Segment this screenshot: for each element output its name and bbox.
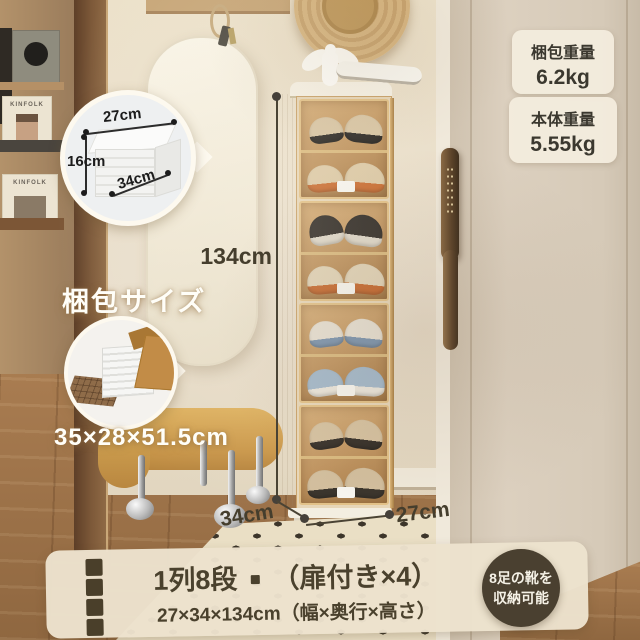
banner-title: 1列8段・（扉付き×4） [115, 553, 476, 598]
banner-title-right: （扉付き×4） [272, 561, 438, 594]
dimension-dot [272, 92, 281, 101]
magazine-photo [14, 196, 46, 218]
bench-foot [126, 498, 154, 520]
door-label-chip [337, 283, 355, 294]
package-inset [64, 316, 178, 430]
package-weight-badge: 梱包重量 6.2kg [512, 30, 614, 94]
cabinet-front [296, 96, 392, 510]
magazine-photo [16, 114, 38, 140]
dimension-dot [385, 510, 394, 519]
inset-dim-dot [81, 134, 87, 140]
magazine-title: KINFOLK [3, 180, 57, 186]
magazine-title: KINFOLK [3, 102, 51, 108]
banner-title-separator: ・ [250, 575, 259, 584]
banner-title-left: 1列8段 [153, 564, 238, 595]
capacity-line1: 8足の靴を [482, 568, 560, 588]
capacity-badge: 8足の靴を 収納可能 [482, 549, 560, 627]
cabinet-door-4 [299, 405, 389, 505]
shoebox-side [155, 139, 181, 197]
banner-decor-square [86, 599, 103, 616]
banner-subtitle: 27×34×134cm（幅×奥行×高さ） [116, 595, 476, 628]
product-weight-badge: 本体重量 5.55kg [509, 97, 617, 163]
cabinet-door-3 [299, 303, 389, 403]
package-weight-label: 梱包重量 [512, 39, 614, 63]
door-panel-groove [626, 0, 628, 640]
inset-dim-dot [171, 119, 177, 125]
door-keypad [446, 166, 454, 214]
banner-decor-square [86, 579, 103, 596]
door-label-chip [337, 181, 355, 192]
door-label-chip [337, 487, 355, 498]
wall-shelf [0, 218, 64, 230]
package-weight-value: 6.2kg [512, 66, 614, 90]
shoe-cabinet [278, 82, 394, 526]
inset-height-label: 16cm [67, 153, 105, 170]
angel-figurine-head [325, 44, 336, 55]
box-dimension-inset: 27cm 16cm 34cm [60, 90, 196, 226]
inset-dim-dot [81, 190, 87, 196]
height-dimension-label: 134cm [190, 243, 272, 270]
product-weight-value: 5.55kg [509, 133, 617, 157]
wall-shelf [0, 140, 64, 152]
wall-pan-decor [24, 42, 48, 66]
banner-decor-square [86, 619, 103, 636]
product-weight-label: 本体重量 [509, 106, 617, 130]
inset-width-label: 27cm [102, 105, 142, 126]
inset-dim-dot [109, 191, 115, 197]
inset-dim-dot [165, 170, 171, 176]
height-dimension-line [276, 96, 278, 500]
package-size-title: 梱包サイズ [62, 280, 206, 319]
wall-shelf [0, 82, 64, 90]
door-label-chip [337, 385, 355, 396]
door-handle-bar [443, 250, 458, 350]
cabinet-door-1 [299, 99, 389, 199]
cabinet-hinge-strip [390, 98, 394, 508]
cabinet-door-2 [299, 201, 389, 301]
dimension-dot [300, 514, 309, 523]
product-scene: KINFOLK KINFOLK [0, 0, 640, 640]
banner-decor-square [85, 559, 102, 576]
capacity-line2: 収納可能 [482, 588, 560, 608]
package-size-value: 35×28×51.5cm [54, 424, 229, 452]
